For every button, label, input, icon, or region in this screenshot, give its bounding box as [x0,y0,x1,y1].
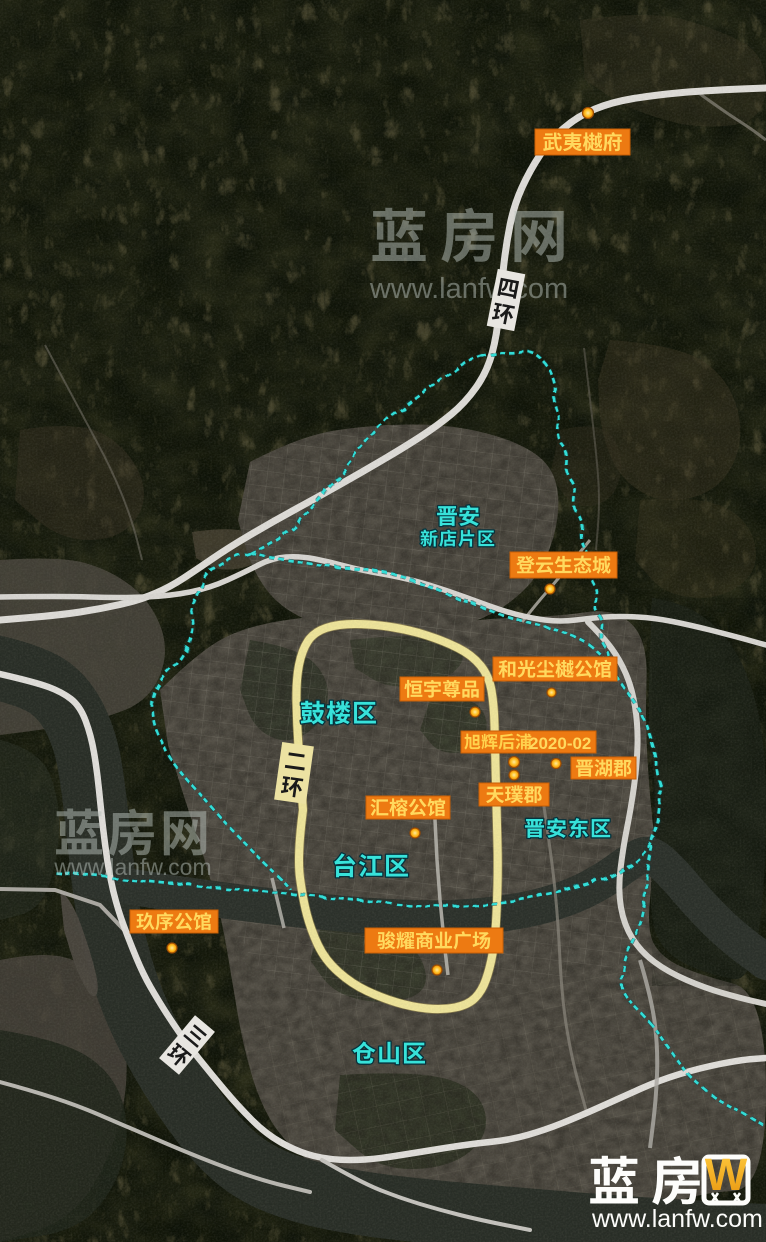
svg-text:www.lanfw.com: www.lanfw.com [369,273,568,305]
svg-text:www.lanfw.com: www.lanfw.com [53,854,211,880]
svg-text:W: W [705,1149,748,1200]
svg-text:www.lanfw.com: www.lanfw.com [591,1205,763,1233]
svg-text:2020-02: 2020-02 [529,734,591,753]
